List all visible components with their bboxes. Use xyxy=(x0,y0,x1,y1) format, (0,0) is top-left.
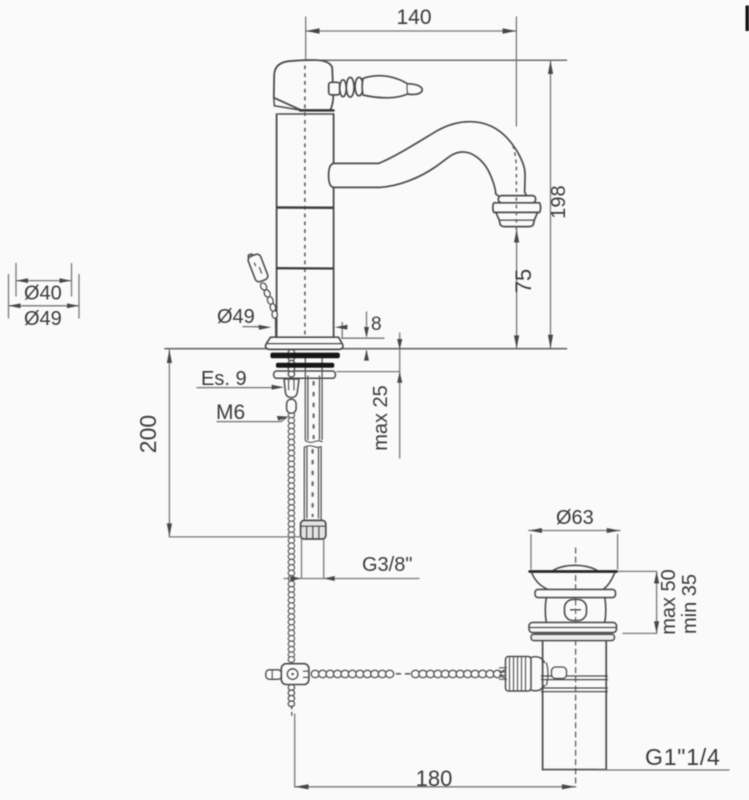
svg-text:G3/8": G3/8" xyxy=(362,554,412,576)
svg-text:max 50: max 50 xyxy=(658,569,680,635)
svg-text:M6: M6 xyxy=(216,401,245,424)
svg-text:Ø49: Ø49 xyxy=(217,306,255,328)
svg-text:min 35: min 35 xyxy=(679,574,701,634)
svg-text:198: 198 xyxy=(548,185,570,218)
svg-text:Ø63: Ø63 xyxy=(556,507,594,529)
svg-text:180: 180 xyxy=(416,766,453,791)
svg-text:Es. 9: Es. 9 xyxy=(201,368,247,390)
svg-text:G1"1/4: G1"1/4 xyxy=(645,744,721,770)
svg-text:75: 75 xyxy=(511,269,536,293)
svg-text:140: 140 xyxy=(396,6,431,29)
svg-text:Ø40: Ø40 xyxy=(24,283,62,305)
svg-text:200: 200 xyxy=(135,415,161,453)
svg-text:8: 8 xyxy=(371,314,382,335)
svg-text:max 25: max 25 xyxy=(370,385,392,451)
svg-text:Ø49: Ø49 xyxy=(24,308,62,330)
